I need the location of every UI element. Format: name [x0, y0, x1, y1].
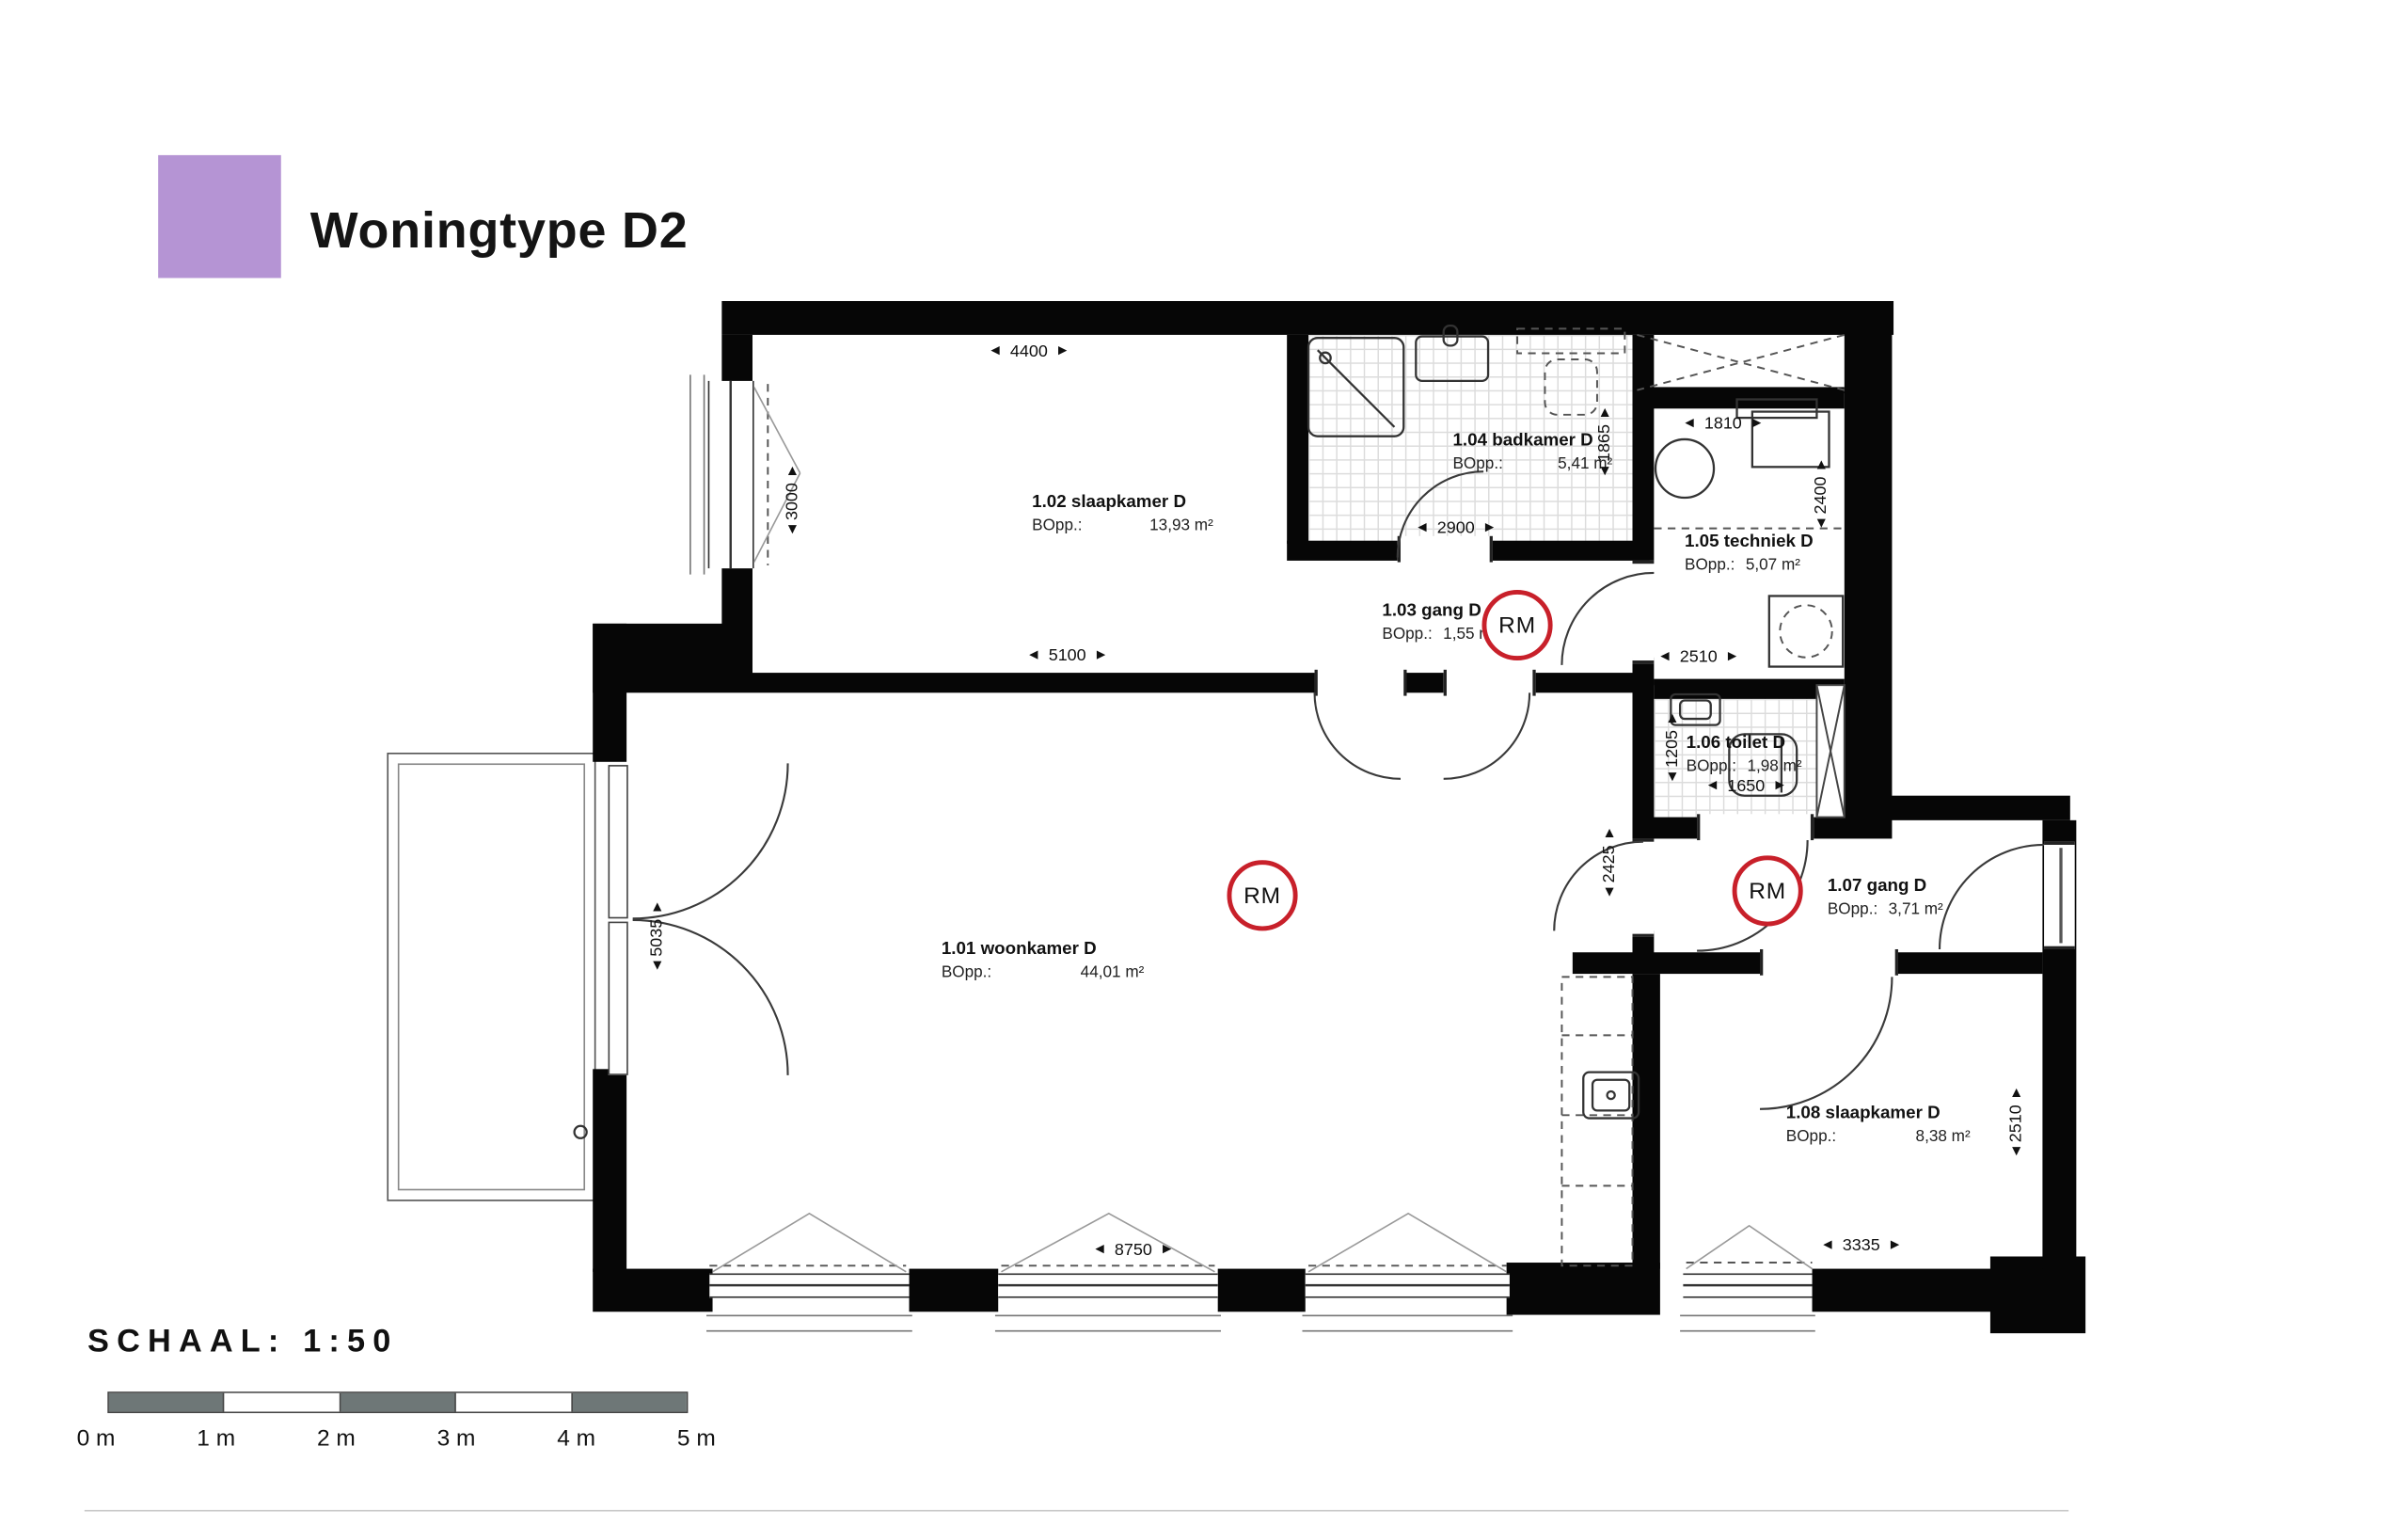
dimension-2400: ▲ 2400 ▼	[1813, 458, 1831, 532]
wall	[1483, 541, 1649, 561]
scale-bar-labels: 0 m 1 m 2 m 3 m 4 m 5 m	[77, 1425, 716, 1452]
smoke-detector-marker: RM	[1482, 590, 1553, 660]
arrow-left-icon: ◄	[1820, 1238, 1834, 1253]
door-opening	[1444, 670, 1536, 696]
scale-tick-label: 3 m	[437, 1425, 476, 1452]
room-label-slaapkamer-108: 1.08 slaapkamer D BOpp.: 8,38 m²	[1786, 1105, 1971, 1147]
arrow-down-icon: ▼	[785, 522, 800, 537]
dimension-2510-slaapkamer: ▲ 2510 ▼	[2007, 1087, 2026, 1160]
wall	[1637, 387, 1844, 408]
room-name: 1.01 woonkamer D	[942, 940, 1145, 961]
window	[1683, 1273, 1812, 1297]
bopp-label: BOpp.:	[1786, 1128, 1836, 1147]
window	[709, 1273, 909, 1297]
bopp-label: BOpp.:	[1382, 626, 1432, 644]
scale-tick-label: 4 m	[557, 1425, 595, 1452]
arrow-up-icon: ▲	[1665, 711, 1679, 726]
wall	[1654, 679, 1844, 699]
room-area: 5,07 m²	[1746, 556, 1800, 575]
scale-bar-segment	[572, 1393, 686, 1412]
bopp-label: BOpp.:	[1687, 757, 1736, 776]
dimension-3000: ▲ 3000 ▼	[784, 464, 802, 537]
room-name: 1.02 slaapkamer D	[1032, 493, 1213, 514]
dimension-1865: ▲ 1865 ▼	[1595, 405, 1614, 479]
arrow-right-icon: ►	[1482, 521, 1497, 536]
wall	[1845, 796, 2070, 820]
wall	[1845, 301, 1893, 808]
dimension-2900: ◄ 2900 ►	[1415, 519, 1497, 538]
door-leaf	[2059, 848, 2061, 943]
room-name: 1.07 gang D	[1828, 877, 1943, 898]
room-area: 13,93 m²	[1149, 517, 1213, 535]
wall	[752, 673, 1315, 692]
wall	[1573, 952, 1760, 974]
wall	[1507, 1263, 1660, 1315]
window	[708, 381, 754, 568]
arrow-down-icon: ▼	[1597, 464, 1611, 479]
balcony-door-panel	[609, 765, 628, 918]
room-name: 1.08 slaapkamer D	[1786, 1105, 1971, 1125]
dimension-2510-techniek: ◄ 2510 ►	[1657, 648, 1739, 667]
arrow-right-icon: ►	[1160, 1243, 1174, 1258]
dimension-1650: ◄ 1650 ►	[1705, 777, 1787, 796]
window-sill	[1680, 1315, 1815, 1332]
scale-tick-label: 0 m	[77, 1425, 116, 1452]
wall	[593, 624, 626, 762]
window-sill	[689, 374, 705, 574]
arrow-down-icon: ▼	[2009, 1145, 2023, 1160]
wall	[910, 1269, 999, 1312]
wall	[1287, 541, 1398, 561]
arrow-up-icon: ▲	[1597, 405, 1611, 421]
dimension-8750: ◄ 8750 ►	[1092, 1241, 1174, 1260]
arrow-right-icon: ►	[1055, 344, 1069, 359]
dimension-1205: ▲ 1205 ▼	[1663, 711, 1682, 785]
wall	[1808, 818, 1893, 839]
window	[1306, 1273, 1510, 1297]
bottom-divider-line	[85, 1510, 2068, 1512]
door-opening	[1398, 536, 1493, 563]
wall	[1218, 1269, 1306, 1312]
arrow-up-icon: ▲	[650, 900, 664, 915]
dimension-2425: ▲ 2425 ▼	[1600, 827, 1619, 900]
room-area: 44,01 m²	[1081, 963, 1145, 982]
page-title: Woningtype D2	[310, 201, 689, 260]
dimension-4400: ◄ 4400 ►	[988, 342, 1069, 361]
room-area: 3,71 m²	[1889, 900, 1943, 919]
arrow-left-icon: ◄	[1682, 417, 1696, 432]
window	[998, 1273, 1217, 1297]
wall	[1529, 673, 1649, 692]
room-label-slaapkamer-102: 1.02 slaapkamer D BOpp.: 13,93 m²	[1032, 493, 1213, 535]
bopp-label: BOpp.:	[1828, 900, 1877, 919]
arrow-left-icon: ◄	[988, 344, 1002, 359]
room-name: 1.04 badkamer D	[1452, 432, 1612, 453]
wall	[721, 301, 1893, 335]
arrow-up-icon: ▲	[785, 464, 800, 479]
door-opening	[1633, 561, 1655, 663]
wall	[1892, 952, 2042, 974]
arrow-left-icon: ◄	[1026, 648, 1040, 663]
room-label-badkamer: 1.04 badkamer D BOpp.: 5,41 m²	[1452, 432, 1612, 474]
arrow-down-icon: ▼	[1665, 770, 1679, 785]
window-sill	[1302, 1315, 1513, 1332]
room-name: 1.06 toilet D	[1687, 734, 1802, 755]
wall	[1633, 679, 1655, 839]
scale-bar-segment	[456, 1393, 572, 1412]
shaft-box	[1637, 332, 1847, 393]
arrow-right-icon: ►	[1725, 650, 1739, 665]
scale-bar-segment	[225, 1393, 341, 1412]
arrow-right-icon: ►	[1750, 417, 1764, 432]
wall	[1287, 335, 1308, 544]
scale-bar-segment	[109, 1393, 225, 1412]
arrow-up-icon: ▲	[1602, 827, 1616, 842]
arrow-left-icon: ◄	[1092, 1243, 1106, 1258]
arrow-left-icon: ◄	[1705, 779, 1719, 794]
window-sill	[995, 1315, 1221, 1332]
arrow-right-icon: ►	[1888, 1238, 1902, 1253]
wall	[1633, 387, 1655, 560]
floorplan-page: Woningtype D2	[0, 0, 2408, 1525]
scale-tick-label: 5 m	[677, 1425, 716, 1452]
legend-color-swatch	[158, 155, 281, 278]
arrow-up-icon: ▲	[1814, 458, 1829, 473]
wall	[1633, 974, 1660, 1268]
dimension-1810: ◄ 1810 ►	[1682, 415, 1764, 434]
arrow-down-icon: ▼	[1814, 517, 1829, 532]
scale-bar-segment	[341, 1393, 456, 1412]
room-name: 1.05 techniek D	[1685, 533, 1814, 554]
room-area: 8,38 m²	[1916, 1128, 1971, 1147]
dimension-5035: ▲ 5035 ▼	[648, 900, 667, 974]
scale-bar	[107, 1391, 688, 1413]
wall	[593, 1069, 626, 1272]
room-name: 1.03 gang D	[1382, 602, 1497, 623]
door-opening	[1697, 814, 1814, 840]
dimension-3335: ◄ 3335 ►	[1820, 1236, 1902, 1255]
wall	[1813, 1269, 1994, 1312]
arrow-left-icon: ◄	[1657, 650, 1671, 665]
wall	[1633, 818, 1698, 839]
bopp-label: BOpp.:	[1032, 517, 1082, 535]
bopp-label: BOpp.:	[1685, 556, 1735, 575]
door-opening	[1315, 670, 1407, 696]
room-label-woonkamer: 1.01 woonkamer D BOpp.: 44,01 m²	[942, 940, 1145, 982]
smoke-detector-marker: RM	[1227, 860, 1297, 930]
room-label-toilet: 1.06 toilet D BOpp.: 1,98 m²	[1687, 734, 1802, 776]
room-label-techniek: 1.05 techniek D BOpp.: 5,07 m²	[1685, 533, 1814, 576]
room-label-gang-103: 1.03 gang D BOpp.: 1,55 m²	[1382, 602, 1497, 644]
scale-tick-label: 2 m	[317, 1425, 356, 1452]
smoke-detector-marker: RM	[1733, 855, 1803, 926]
wall	[721, 335, 752, 384]
arrow-right-icon: ►	[1772, 779, 1786, 794]
dimension-5100: ◄ 5100 ►	[1026, 646, 1108, 665]
scale-title: SCHAAL: 1:50	[87, 1324, 398, 1360]
door-opening	[1633, 838, 1655, 936]
wall	[593, 1269, 712, 1312]
door-opening	[1760, 949, 1898, 976]
entrance-door	[2044, 842, 2075, 949]
arrow-right-icon: ►	[1094, 648, 1108, 663]
arrow-left-icon: ◄	[1415, 521, 1429, 536]
wall	[1633, 335, 1655, 390]
bopp-label: BOpp.:	[1452, 455, 1502, 474]
arrow-down-icon: ▼	[1602, 885, 1616, 900]
balcony-railing	[398, 763, 585, 1190]
room-label-gang-107: 1.07 gang D BOpp.: 3,71 m²	[1828, 877, 1943, 919]
arrow-up-icon: ▲	[2009, 1087, 2023, 1102]
room-area: 1,98 m²	[1747, 757, 1801, 776]
arrow-down-icon: ▼	[650, 959, 664, 974]
scale-tick-label: 1 m	[197, 1425, 235, 1452]
bopp-label: BOpp.:	[942, 963, 991, 982]
wall	[1401, 673, 1444, 692]
window-sill	[706, 1315, 912, 1332]
balcony-door-panel	[609, 922, 628, 1075]
